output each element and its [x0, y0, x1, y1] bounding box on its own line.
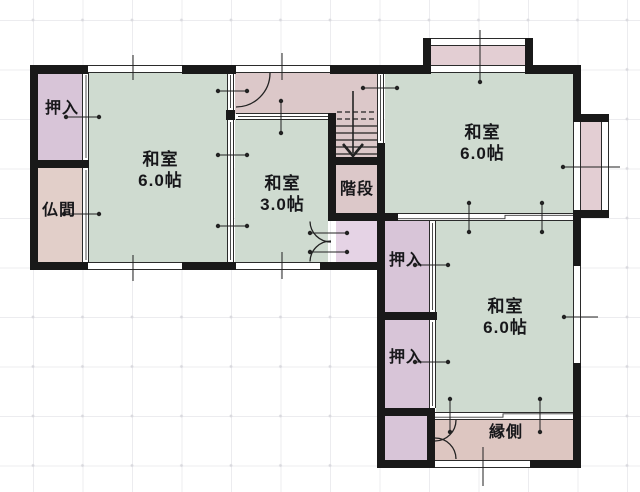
bay-right-top-bar — [581, 114, 609, 122]
right-wall-window — [573, 266, 581, 363]
room-name: 和室 — [230, 173, 335, 194]
wall — [30, 160, 89, 168]
wall — [330, 65, 423, 74]
bay-top-inner-line — [431, 65, 525, 73]
room-size: 3.0帖 — [230, 194, 335, 215]
hall-center-sliding-door — [236, 113, 330, 120]
understairs-closet — [336, 221, 377, 262]
bay-window-right — [581, 122, 601, 210]
room-name: 和室 — [430, 122, 535, 143]
wall — [226, 110, 235, 120]
right-rooms-sliding-door — [398, 213, 573, 221]
wall — [182, 262, 236, 270]
room-label-butsuma: 仏間 — [33, 202, 85, 220]
room-size: 6.0帖 — [430, 143, 535, 164]
room-label-oshiire-top-left: 押入 — [36, 100, 88, 118]
wall-right-outer — [573, 65, 581, 122]
closet-bottom — [385, 416, 427, 460]
engawa-sliding-door — [435, 412, 573, 420]
room-size: 6.0帖 — [453, 317, 558, 338]
window-top-hall — [236, 65, 330, 73]
wall-right-outer — [573, 218, 581, 266]
room-label-kaidan: 階段 — [331, 181, 383, 199]
wall — [377, 408, 435, 416]
wall — [530, 460, 581, 468]
hall-right-room-door — [377, 73, 384, 143]
bay-right-bottom-bar — [573, 210, 609, 218]
room-label-washitsu-center: 和室 3.0帖 — [230, 173, 335, 215]
wall — [377, 312, 437, 320]
room-name: 和室 — [108, 149, 213, 170]
wall — [30, 65, 88, 74]
bay-right-inner-line — [573, 122, 581, 210]
fusuma-upper — [227, 73, 234, 110]
bay-window-top — [431, 44, 525, 65]
room-label-washitsu-left: 和室 6.0帖 — [108, 149, 213, 191]
window-bottom-left — [88, 262, 182, 270]
bay-right-window — [601, 122, 609, 210]
wall — [377, 460, 435, 468]
room-label-oshiire-right-2: 押入 — [380, 349, 432, 367]
room-label-engawa: 縁側 — [480, 424, 532, 442]
engawa-bottom-window — [435, 460, 530, 468]
wall — [320, 262, 385, 270]
hallway — [235, 73, 377, 114]
room-label-washitsu-bottom-right: 和室 6.0帖 — [453, 296, 558, 338]
wall — [377, 213, 398, 221]
wall — [427, 416, 435, 460]
room-label-washitsu-top-right: 和室 6.0帖 — [430, 122, 535, 164]
wall — [182, 65, 236, 74]
wall — [30, 262, 88, 270]
wall-right-outer — [573, 363, 581, 468]
bay-side-wall — [525, 38, 533, 74]
window-bottom-mid — [236, 262, 320, 270]
bay-side-wall — [423, 38, 431, 74]
window-top-left — [88, 65, 182, 73]
room-label-oshiire-right-1: 押入 — [380, 252, 432, 270]
floor-plan-canvas: 押入 仏間 和室 6.0帖 和室 3.0帖 階段 和室 6.0帖 押入 押入 和… — [0, 0, 640, 492]
bay-top-window — [423, 38, 533, 46]
room-name: 和室 — [453, 296, 558, 317]
room-size: 6.0帖 — [108, 170, 213, 191]
